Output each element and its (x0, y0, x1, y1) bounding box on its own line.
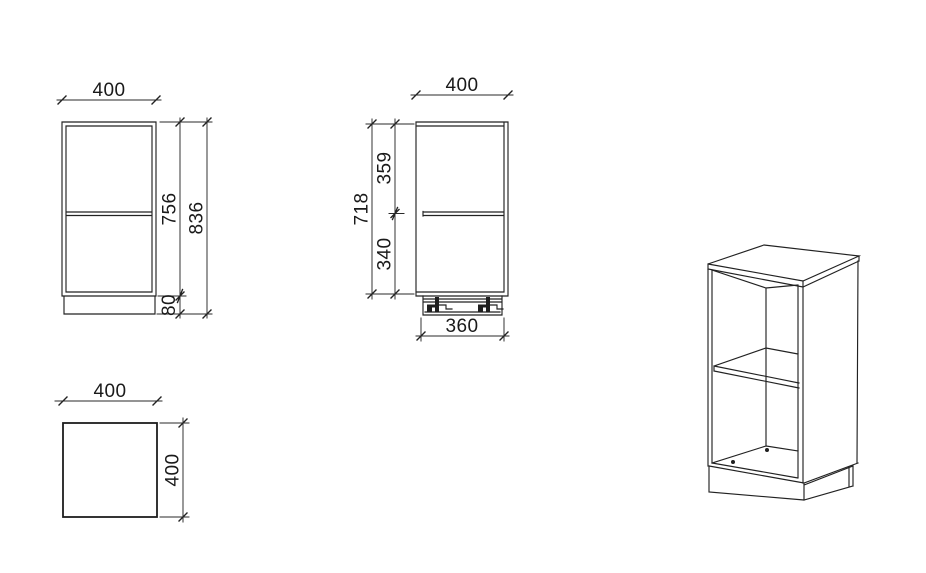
plan-view-outline (63, 423, 157, 517)
side-inner-height-dim: 718 (352, 193, 373, 226)
side-depth-dim: 400 (446, 75, 479, 96)
side-above-shelf-dim: 359 (375, 152, 396, 185)
technical-drawing-sheet: 400 756 836 80 (0, 0, 926, 573)
iso-bottom-panel (712, 446, 798, 478)
iso-plinth (709, 463, 858, 500)
front-plinth-height-dim: 80 (159, 294, 180, 316)
iso-carcass-edges (708, 261, 858, 483)
front-view: 400 756 836 80 (57, 80, 212, 318)
front-body-height-dim: 756 (160, 193, 181, 226)
front-width-dim: 400 (93, 80, 126, 101)
iso-top-panel (708, 245, 859, 281)
plan-depth-dim: 400 (163, 454, 184, 487)
side-view-outline (416, 122, 508, 315)
front-view-dimensions: 400 756 836 80 (57, 80, 212, 318)
front-view-outline (62, 122, 156, 314)
iso-fitting-hole (765, 448, 769, 452)
front-total-height-dim: 836 (187, 202, 208, 235)
plan-view-dimensions: 400 400 (55, 381, 189, 522)
plan-view: 400 400 (55, 381, 189, 522)
plan-width-dim: 400 (94, 381, 127, 402)
iso-fitting-hole (731, 460, 735, 464)
side-plinth-depth-dim: 360 (446, 316, 479, 337)
cabinet-technical-drawing: 400 756 836 80 (0, 0, 926, 573)
isometric-view (708, 245, 859, 500)
iso-shelf (714, 348, 799, 388)
side-below-shelf-dim: 340 (375, 238, 396, 271)
side-view: 400 718 359 340 360 (352, 75, 514, 341)
